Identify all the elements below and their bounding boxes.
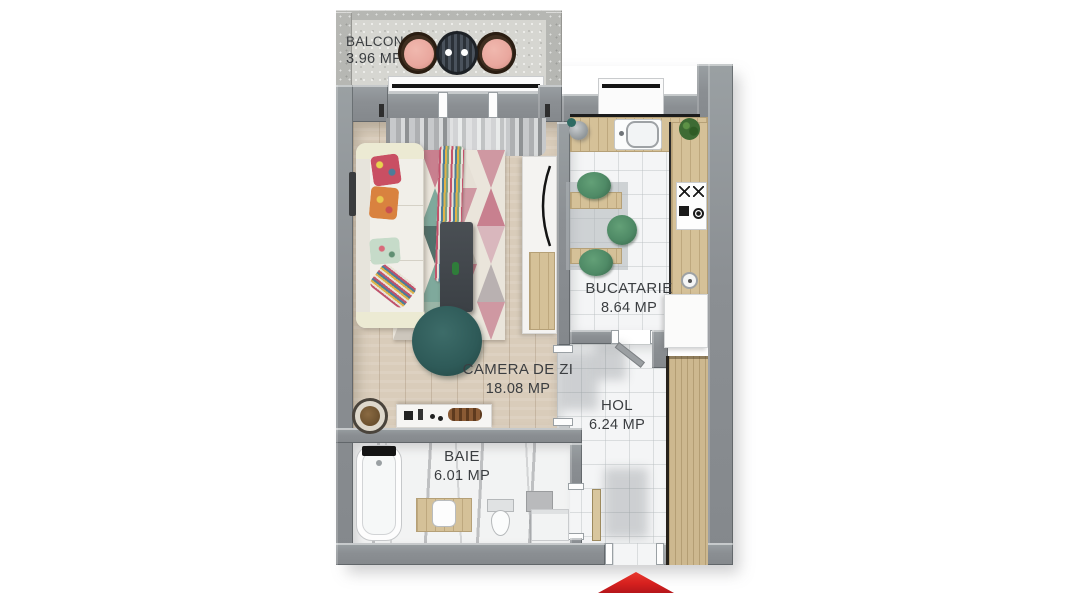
room-area: 8.64 MP: [601, 300, 657, 316]
kitchen-plant-icon: [679, 118, 700, 140]
kitchen-window-glass: [602, 84, 660, 88]
room-label-baie: BAIE 6.01 MP: [417, 447, 507, 486]
curtain-bracket-right: [545, 104, 550, 117]
stove-burner-icon: [679, 186, 690, 197]
floor-plan: BALCON 3.96 MP: [0, 0, 1080, 607]
sofa-arm-bottom: [356, 312, 424, 328]
sofa-backrest: [356, 143, 370, 328]
balcony-door-glass: [392, 84, 540, 88]
room-name: BUCATARIE: [585, 280, 672, 297]
living-window-mullion-right: [488, 92, 498, 118]
room-label-bucatarie: BUCATARIE 8.64 MP: [570, 279, 688, 318]
balcony-table: [436, 31, 478, 75]
entrance-jamb-left: [605, 543, 613, 565]
radiator: [349, 172, 356, 216]
room-area: 3.96 MP: [346, 51, 402, 67]
bottle-on-table: [452, 262, 459, 275]
room-area: 18.08 MP: [486, 381, 550, 397]
balcony-right-wall: [546, 12, 562, 92]
entrance-arrow-icon: [598, 572, 674, 593]
room-label-camera-de-zi: CAMERA DE ZI 18.08 MP: [440, 360, 596, 399]
stove-burner-icon: [693, 186, 704, 197]
bathroom-sink: [432, 500, 456, 527]
teal-bowl: [567, 118, 576, 127]
kitchen-small-sink-dot: [688, 279, 692, 283]
left-wall: [336, 85, 353, 565]
hallway-shadow-2: [604, 468, 648, 538]
kitchen-chair-2: [607, 215, 637, 245]
living-hall-opening-jamb-top: [553, 345, 573, 353]
plant-icon: [360, 406, 380, 426]
washing-machine: [531, 509, 569, 541]
entrance-threshold: [613, 543, 656, 565]
kitchen-sink-basin: [626, 121, 659, 148]
top-wall-living-corner-right: [538, 85, 562, 122]
kitchen-sink-faucet-icon: [619, 131, 624, 136]
living-hall-opening-jamb-bottom: [553, 418, 573, 426]
bathroom-door-leaf: [592, 489, 601, 541]
hall-wardrobe: [666, 356, 708, 565]
curtain-bracket-left: [379, 104, 384, 117]
room-name: BAIE: [444, 448, 480, 465]
room-name: BALCON: [346, 34, 404, 49]
room-name: HOL: [601, 397, 633, 414]
stove-burner-icon: [679, 206, 689, 216]
kitchen-chair-3: [579, 249, 613, 276]
room-area: 6.24 MP: [589, 417, 645, 433]
balcony-table-dot-right: [461, 49, 468, 56]
room-area: 6.01 MP: [434, 468, 490, 484]
bathtub-faucet-icon: [376, 460, 382, 466]
room-label-hol: HOL 6.24 MP: [577, 396, 657, 435]
tv-console-cabinet: [529, 252, 555, 330]
right-wall: [708, 64, 733, 565]
kitchen-chair-1: [577, 172, 611, 199]
bathtub-shelf: [362, 446, 396, 456]
room-name: CAMERA DE ZI: [463, 361, 574, 378]
sideboard-decor-tray: [448, 408, 482, 421]
balcony-table-dot-left: [445, 49, 452, 56]
bottom-wall-left: [336, 543, 605, 565]
stove-burner-icon: [693, 208, 704, 219]
sofa-pillow-floral: [369, 186, 400, 220]
tv-icon: [532, 164, 552, 248]
living-window-mullion-left: [438, 92, 448, 118]
sofa-pillow-mint: [369, 237, 401, 265]
balcony-chair-right-cushion: [482, 39, 512, 69]
sideboard-decor-dots: [430, 414, 435, 419]
sideboard-decor-vase: [418, 409, 423, 420]
sideboard-decor-box: [404, 411, 413, 420]
entrance-jamb-right: [656, 543, 664, 565]
balcony-chair-left-cushion: [404, 39, 434, 69]
sofa-pillow-multicolor: [370, 153, 402, 187]
bathroom-door-jamb-top: [568, 483, 584, 490]
